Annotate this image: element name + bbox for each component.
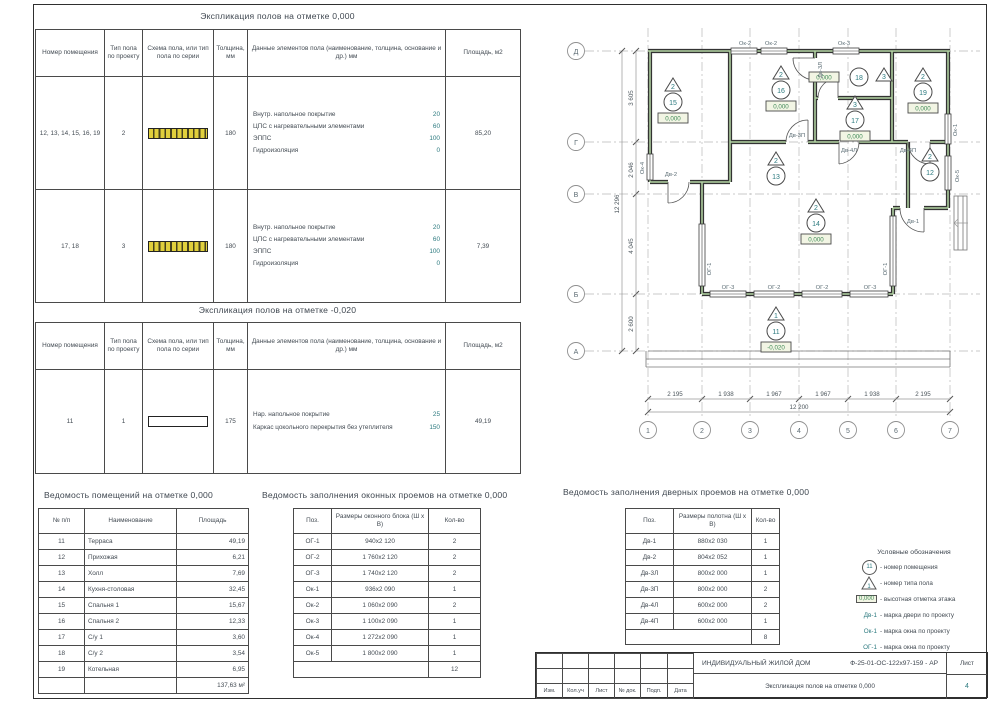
floor-type: 3 [105, 190, 143, 303]
total-count: 8 [752, 630, 780, 645]
svg-text:15: 15 [669, 100, 677, 107]
svg-text:14: 14 [812, 221, 820, 228]
svg-text:0,000: 0,000 [773, 104, 789, 111]
svg-text:13: 13 [772, 174, 780, 181]
table-row: 16 Спальня 2 12,33 [39, 614, 249, 630]
table-row: ОГ-1 940х2 120 2 [294, 534, 481, 550]
floor-scheme-bar [148, 128, 208, 139]
svg-text:-0,020: -0,020 [767, 345, 785, 352]
column-header: Размеры оконного блока (Ш х В) [332, 509, 429, 534]
table-row: Дв-2 804х2 052 1 [626, 550, 780, 566]
legend-item-mark: Дв-1 - марка двери по проекту [840, 607, 988, 623]
table-row: Ок-1 936х2 090 1 [294, 582, 481, 598]
room-marker: 2 15 0,000 [658, 78, 688, 123]
terrace-deck [646, 351, 950, 367]
floor-layer: ЦПС с нагревательными элементами60 [253, 234, 440, 246]
svg-text:18: 18 [855, 75, 863, 82]
rooms-table: № п/пНаименованиеПлощадь 11 Терраса 49,1… [38, 508, 249, 694]
svg-text:2: 2 [814, 205, 818, 212]
floor-type: 1 [105, 370, 143, 474]
legend-title: Условные обозначения [840, 549, 988, 556]
table-row: 13 Холл 7,69 [39, 566, 249, 582]
table-row: 18 С/у 2 3,54 [39, 646, 249, 662]
total-row: 8 [626, 630, 780, 645]
room-marker: 1 11 -0,020 [761, 307, 791, 352]
windows-list-title: Ведомость заполнения оконных проемов на … [262, 490, 507, 500]
floor-layer: Нар. напольное покрытие25 [253, 409, 440, 421]
column-header: Толщина, мм [214, 323, 248, 370]
table-row: Дв-3Л 800х2 000 1 [626, 566, 780, 582]
opening-label: Ок-3 [838, 41, 850, 47]
column-header: № п/п [39, 509, 85, 534]
legend-item-elevation: 0,000 - высотная отметка этажа [840, 591, 988, 607]
floor-layer: ЦПС с нагревательными элементами60 [253, 121, 440, 133]
opening-label: Дв-4Л [841, 148, 857, 154]
svg-text:2: 2 [928, 154, 932, 161]
column-header: Тип пола по проекту [105, 323, 143, 370]
table-row: 12 Прихожая 6,21 [39, 550, 249, 566]
explication-m020-title: Экспликация полов на отметке -0,020 [35, 305, 520, 315]
room-numbers: 17, 18 [36, 190, 105, 303]
floor-scheme-bar [148, 241, 208, 252]
titleblock-label: Кол.уч [563, 684, 589, 699]
opening-label: ОГ-3 [864, 285, 877, 291]
opening-label: Ок-5 [955, 170, 961, 182]
room-numbers: 11 [36, 370, 105, 474]
column-header: Площадь [177, 509, 249, 534]
total-row: 137,63 м² [39, 678, 249, 694]
table-row: 11 Терраса 49,19 [39, 534, 249, 550]
svg-text:Б: Б [574, 292, 579, 299]
column-header: Данные элементов пола (наименование, тол… [248, 30, 446, 77]
document-title: Экспликация полов на отметке 0,000 [694, 674, 946, 698]
column-header: Схема пола, или тип пола по серии [143, 323, 214, 370]
column-header: Поз. [294, 509, 332, 534]
explication-table-m020: Номер помещенияТип пола по проектуСхема … [35, 322, 521, 474]
opening-label: Дв-4П [900, 148, 916, 154]
dimension-label: 2 600 [628, 316, 635, 332]
svg-text:1: 1 [646, 428, 650, 435]
sheet-label: Лист [947, 653, 987, 675]
legend: Условные обозначения 11 - номер помещени… [840, 549, 988, 655]
svg-text:Д: Д [574, 49, 579, 56]
legend-item-floor-type: 1 - номер типа пола [840, 575, 988, 591]
floor-scheme-bar [148, 416, 208, 427]
total-width-dimension: 12 200 [790, 404, 809, 411]
explication-table-0: Номер помещенияТип пола по проектуСхема … [35, 29, 521, 303]
area-value: 49,19 [446, 370, 521, 474]
opening-label: ОГ-1 [707, 263, 713, 276]
titleblock-label: № док. [615, 684, 641, 699]
opening-label: ОГ-1 [883, 263, 889, 276]
total-count: 12 [429, 662, 481, 678]
table-row: 15 Спальня 1 15,67 [39, 598, 249, 614]
svg-text:16: 16 [777, 88, 785, 95]
dimension-label: 3 605 [628, 90, 635, 106]
column-header: Поз. [626, 509, 674, 534]
grid-axis-column: 3 [742, 28, 759, 439]
area-value: 85,20 [446, 77, 521, 190]
entrance-porch [954, 196, 968, 250]
dimension-label: 1 967 [766, 391, 782, 398]
svg-text:3: 3 [748, 428, 752, 435]
legend-item-room-number: 11 - номер помещения [840, 559, 988, 575]
opening-label: Ок-2 [739, 41, 751, 47]
windows-table: Поз.Размеры оконного блока (Ш х В)Кол-во… [293, 508, 481, 678]
dimension-label: 1 967 [815, 391, 831, 398]
table-row: ОГ-2 1 760х2 120 2 [294, 550, 481, 566]
dimension-label: 2 046 [628, 162, 635, 178]
floor-layer: ЭППС100 [253, 246, 440, 258]
floor-layer: Внутр. напольное покрытие20 [253, 222, 440, 234]
svg-text:2: 2 [671, 84, 675, 91]
table-row: Ок-5 1 800х2 090 1 [294, 646, 481, 662]
svg-text:7: 7 [948, 428, 952, 435]
table-row: 14 Кухня-столовая 32,45 [39, 582, 249, 598]
column-header: Площадь, м2 [446, 30, 521, 77]
room-marker: 2 19 0,000 [908, 68, 938, 113]
svg-text:2: 2 [779, 72, 783, 79]
floor-layer: Гидроизоляция0 [253, 258, 440, 270]
titleblock-label: Дата [668, 684, 694, 699]
table-row: Дв-4Л 600х2 000 2 [626, 598, 780, 614]
column-header: Кол-во [429, 509, 481, 534]
opening-label: ОГ-2 [768, 285, 781, 291]
floor-layer: Внутр. напольное покрытие20 [253, 109, 440, 121]
column-header: Тип пола по проекту [105, 30, 143, 77]
dimension-label: 2 195 [915, 391, 931, 398]
floor-layer: Гидроизоляция0 [253, 145, 440, 157]
titleblock-label: Подп. [641, 684, 668, 699]
room-marker: 2 16 0,000 [766, 66, 796, 111]
column-header: Схема пола, или тип пола по серии [143, 30, 214, 77]
dimension-label: 2 195 [667, 391, 683, 398]
titleblock-label: Лист [589, 684, 615, 699]
table-row: ОГ-3 1 740х2 120 2 [294, 566, 481, 582]
thickness: 180 [214, 77, 248, 190]
table-row: Ок-4 1 272х2 090 1 [294, 630, 481, 646]
svg-text:А: А [574, 349, 579, 356]
explication-0-title: Экспликация полов на отметке 0,000 [35, 11, 520, 21]
svg-text:2: 2 [921, 74, 925, 81]
floor-plan: 1 2 3 4 5 [556, 6, 988, 458]
opening-label: Ок-1 [953, 124, 959, 136]
opening-label: Дв-3Л [818, 62, 824, 78]
svg-text:3: 3 [882, 74, 886, 81]
sheet-number: 4 [947, 675, 987, 699]
table-row: 17, 18 3 180 Внутр. напольное покрытие20… [36, 190, 521, 303]
opening-label: ОГ-2 [816, 285, 829, 291]
thickness: 180 [214, 190, 248, 303]
thickness: 175 [214, 370, 248, 474]
document-code: Ф-25-01-ОС-122х97-159 - АР [850, 660, 938, 667]
table-row: Ок-3 1 100х2 090 1 [294, 614, 481, 630]
svg-text:1: 1 [774, 313, 778, 320]
room-marker: 2 12 [921, 148, 939, 181]
floor-layer: Каркас цокольного перекрытия без утеплит… [253, 422, 440, 434]
svg-text:3: 3 [853, 102, 857, 109]
grid-axis-row: В [568, 186, 981, 203]
svg-text:0,000: 0,000 [915, 106, 931, 113]
dimension-label: 1 938 [864, 391, 880, 398]
table-row: Дв-3П 800х2 000 2 [626, 582, 780, 598]
room-marker: 3 17 0,000 [840, 96, 870, 141]
svg-text:6: 6 [894, 428, 898, 435]
project-name: ИНДИВИДУАЛЬНЫЙ ЖИЛОЙ ДОМ [702, 660, 810, 667]
floor-type-triangle-icon: 1 [861, 576, 877, 590]
svg-text:11: 11 [772, 329, 779, 336]
elevation-box-icon: 0,000 [856, 595, 877, 603]
room-marker: 2 14 0,000 [801, 199, 831, 244]
room-marker: 2 13 [767, 152, 785, 185]
titleblock-label: Изм. [537, 684, 563, 699]
floor-type: 2 [105, 77, 143, 190]
column-header: Номер помещения [36, 30, 105, 77]
column-header: Площадь, м2 [446, 323, 521, 370]
grid-axis-column: 4 [791, 28, 808, 439]
table-row: 11 1 175 Нар. напольное покрытие25 Карка… [36, 370, 521, 474]
opening-label: Дв-3П [789, 133, 805, 139]
dimension-label: 1 938 [718, 391, 734, 398]
total-height-dimension: 12 296 [614, 194, 621, 213]
svg-text:12: 12 [926, 170, 934, 177]
room-numbers: 12, 13, 14, 15, 16, 19 [36, 77, 105, 190]
svg-text:19: 19 [919, 90, 927, 97]
table-row: 17 С/у 1 3,60 [39, 630, 249, 646]
opening-label: Дв-1 [907, 219, 919, 225]
column-header: Данные элементов пола (наименование, тол… [248, 323, 446, 370]
svg-text:В: В [574, 192, 579, 199]
column-header: Наименование [85, 509, 177, 534]
floor-layer: ЭППС100 [253, 133, 440, 145]
column-header: Кол-во [752, 509, 780, 534]
svg-text:17: 17 [851, 118, 859, 125]
table-row: Ок-2 1 060х2 090 2 [294, 598, 481, 614]
svg-text:4: 4 [797, 428, 801, 435]
opening-label: Ок-4 [640, 161, 646, 174]
area-value: 7,39 [446, 190, 521, 303]
title-block: Изм.Кол.учЛист№ док.Подп.Дата ИНДИВИДУАЛ… [535, 652, 988, 698]
opening-label: Ок-2 [765, 41, 777, 47]
svg-text:2: 2 [700, 428, 704, 435]
total-row: 12 [294, 662, 481, 678]
column-header: Размеры полотна (Ш х В) [674, 509, 752, 534]
table-row: Дв-1 880х2 030 1 [626, 534, 780, 550]
svg-text:2: 2 [774, 158, 778, 165]
svg-text:Г: Г [574, 140, 578, 147]
column-header: Номер помещения [36, 323, 105, 370]
opening-label: ОГ-3 [722, 285, 735, 291]
table-row: 19 Котельная 6,95 [39, 662, 249, 678]
svg-text:0,000: 0,000 [808, 237, 824, 244]
room-number-icon: 11 [862, 560, 877, 575]
doors-list-title: Ведомость заполнения дверных проемов на … [563, 487, 809, 497]
grid-axis-column: 5 [840, 28, 857, 439]
svg-text:5: 5 [846, 428, 850, 435]
legend-item-mark: Ок-1 - марка окна по проекту [840, 623, 988, 639]
table-row: Дв-4П 600х2 000 1 [626, 614, 780, 630]
table-row: 12, 13, 14, 15, 16, 19 2 180 Внутр. напо… [36, 77, 521, 190]
column-header: Толщина, мм [214, 30, 248, 77]
doors-table: Поз.Размеры полотна (Ш х В)Кол-во Дв-1 8… [625, 508, 780, 645]
drawing-sheet: Экспликация полов на отметке 0,000 Номер… [0, 0, 990, 702]
svg-text:0,000: 0,000 [665, 116, 681, 123]
opening-label: Дв-2 [665, 172, 677, 178]
dimension-label: 4 045 [628, 238, 635, 254]
svg-text:0,000: 0,000 [847, 134, 863, 141]
rooms-list-title: Ведомость помещений на отметке 0,000 [44, 490, 213, 500]
total-area: 137,63 м² [177, 678, 249, 694]
